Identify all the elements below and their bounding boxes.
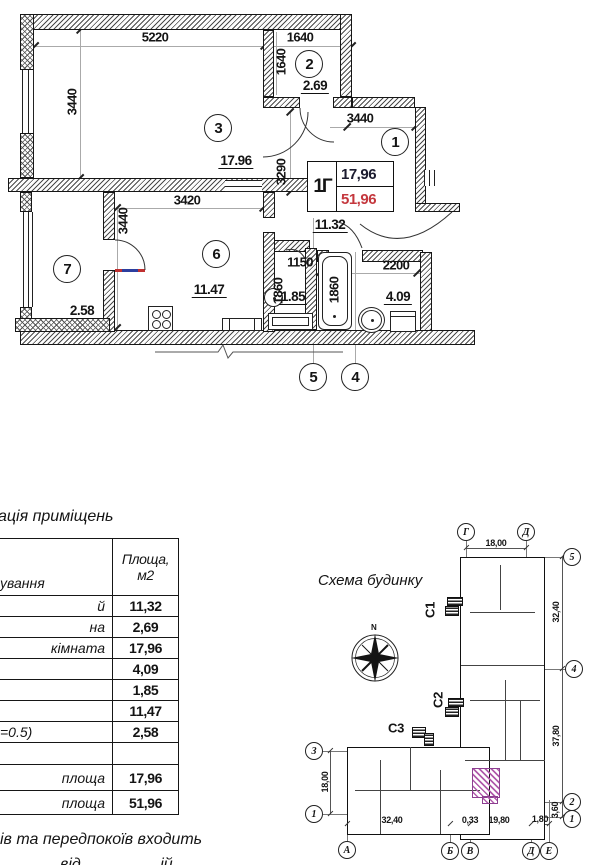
dim-1640-v: 1640 (274, 49, 289, 76)
door-leaf-red (138, 269, 145, 272)
wall-segment (8, 178, 310, 192)
dim-3290: 3290 (274, 159, 289, 186)
partition-line (461, 665, 544, 666)
area-room7: 2.58 (68, 303, 96, 319)
dim-line (80, 30, 81, 178)
stair-icon (447, 597, 463, 606)
row-value: 4,09 (113, 659, 178, 679)
stair-icon (424, 733, 434, 746)
door-arc (263, 112, 308, 157)
wall-segment (420, 252, 432, 332)
wall-segment (415, 107, 426, 205)
washing-machine (268, 313, 313, 330)
dim-3440-right: 3440 (347, 111, 374, 126)
table-header-area-2: м2 (137, 567, 154, 583)
row-value: 11,32 (113, 596, 178, 616)
dim-3440-left: 3440 (65, 89, 80, 116)
wall-segment (415, 203, 460, 212)
dim-2200: 2200 (383, 258, 410, 273)
table-row: 4,09 (0, 658, 178, 679)
stamp-total-area: 51,96 (337, 187, 393, 211)
row-value: 2,58 (113, 722, 178, 742)
dim-1150: 1150 (287, 255, 313, 270)
footnote-line1: ів та передпокоїв входить (0, 831, 202, 849)
table-row: площа 51,96 (0, 790, 178, 814)
axis-circle-e: Е (540, 842, 558, 860)
section-label-c3: С3 (388, 721, 404, 736)
room-number-5: 5 (299, 363, 327, 391)
room-number-6: 6 (202, 240, 230, 268)
area-hall: 11.32 (313, 217, 348, 233)
room-number-3: 3 (204, 114, 232, 142)
partition-line (520, 700, 521, 760)
row-value (113, 743, 178, 764)
balcony-wall (15, 318, 110, 332)
highlighted-apartment (472, 768, 500, 798)
partition-line (470, 612, 535, 613)
kitchen-counter (222, 318, 262, 331)
area-room5: 1.85 (279, 289, 307, 305)
highlighted-apartment-tab (482, 796, 498, 804)
door-arc (360, 212, 452, 238)
scheme-dim-bottom-right: 1,80 (532, 814, 548, 824)
sink (358, 307, 385, 333)
partition-line (500, 565, 501, 610)
table-row: 11,47 (0, 700, 178, 721)
window (22, 70, 34, 133)
row-value: 11,47 (113, 701, 178, 721)
area-room6: 11.47 (192, 282, 227, 298)
section-label-c2: С2 (431, 692, 446, 708)
row-value: 17,96 (113, 765, 178, 790)
area-room3: 17.96 (218, 153, 253, 169)
axis-circle-5: 5 (563, 548, 581, 566)
wall-segment (20, 330, 475, 345)
row-value: 51,96 (113, 791, 178, 814)
row-label (0, 659, 113, 679)
wall-segment (103, 192, 115, 240)
section-label-c1: С1 (423, 602, 438, 618)
balcony-wall (20, 14, 34, 70)
floorplan-sheet: N 5220 1640 1640 3440 3440 3290 3420 344… (0, 0, 615, 865)
wall-segment (340, 14, 352, 97)
dim-1860-bath: 1860 (327, 277, 342, 304)
row-label: й (0, 596, 113, 616)
axis-circle-1-left: 1 (305, 805, 323, 823)
table-row: площа 17,96 (0, 764, 178, 790)
wall-segment (263, 192, 275, 218)
room-number-2: 2 (295, 50, 323, 78)
dim-3420: 3420 (174, 193, 201, 208)
axis-circle-4: 4 (565, 660, 583, 678)
axis-circle-a: А (338, 841, 356, 859)
axis-circle-d-bottom: Д (522, 842, 540, 860)
axis-circle-b: Б (441, 842, 459, 860)
wall-segment (22, 14, 352, 30)
room-number-7: 7 (53, 255, 81, 283)
window (225, 180, 262, 192)
dim-1640-h: 1640 (287, 30, 314, 45)
axis-circle-z: З (305, 742, 323, 760)
north-label: N (371, 623, 377, 632)
area-room4: 4.09 (384, 289, 412, 305)
scheme-dim-bottom-mid: 19,80 (488, 815, 509, 825)
door-leaf-blue (122, 269, 138, 272)
scheme-dim-left: 18,00 (320, 771, 330, 792)
balcony-wall (20, 133, 34, 178)
partition-line (440, 770, 441, 834)
table-header-name: ування (0, 539, 113, 595)
table-row: 1,85 (0, 679, 178, 700)
scheme-dim-line (330, 751, 331, 814)
dim-5220: 5220 (142, 30, 169, 45)
axis-circle-1-right: 1 (563, 810, 581, 828)
stove (148, 306, 173, 331)
dim-3440-mid: 3440 (116, 208, 131, 235)
window (23, 212, 33, 307)
axis-circle-g: Г (457, 523, 475, 541)
door-arc (300, 108, 334, 142)
scheme-dim-top: 18,00 (485, 538, 506, 548)
apartment-type-label: 1Г (308, 162, 337, 211)
room-number-4: 4 (341, 363, 369, 391)
dim-line (117, 208, 263, 209)
wall-segment (352, 97, 415, 108)
table-row: на 2,69 (0, 616, 178, 637)
wall-segment (263, 30, 274, 97)
table-header-area-1: Площа, (122, 551, 169, 567)
row-label: кімната (0, 638, 113, 658)
row-label: на (0, 617, 113, 637)
dim-line (34, 46, 352, 47)
door-arc (115, 240, 145, 270)
wall-segment (263, 97, 300, 108)
partition-line (505, 680, 506, 760)
stamp-living-area: 17,96 (337, 162, 393, 187)
door-leaf-red (115, 269, 122, 272)
apartment-stamp: 1Г 17,96 51,96 (307, 161, 394, 212)
scheme-dim-bottom-gap: 0,33 (462, 815, 478, 825)
scheme-dim-bottom-left: 32,40 (381, 815, 402, 825)
table-row: кімната 17,96 (0, 637, 178, 658)
stair-icon (445, 707, 459, 717)
row-label: площа (0, 765, 113, 790)
scheme-dim-line (466, 548, 526, 549)
scheme-dim-right-lower: 37,80 (551, 725, 561, 746)
break-line (155, 345, 343, 358)
room-number-1: 1 (381, 128, 409, 156)
window (424, 170, 435, 186)
row-value: 2,69 (113, 617, 178, 637)
row-value: 17,96 (113, 638, 178, 658)
wall-segment (333, 97, 352, 108)
partition-line (465, 760, 545, 761)
area-room2: 2.69 (301, 78, 329, 94)
partition-line (410, 747, 411, 790)
row-label (0, 701, 113, 721)
row-value: 1,85 (113, 680, 178, 700)
partition-line (355, 790, 480, 791)
explication-table: ування Площа, м2 й 11,32 на 2,69 кімната… (0, 538, 179, 815)
row-label: =0.5) (0, 722, 113, 742)
stair-icon (445, 606, 459, 616)
scheme-dim-right-upper: 32,40 (551, 601, 561, 622)
compass-rose (351, 634, 399, 682)
cabinet (390, 311, 416, 332)
axis-circle-2: 2 (563, 793, 581, 811)
partition-line (470, 700, 540, 701)
footnote-line2-fragment: від ій (60, 856, 173, 865)
axis-circle-v: В (461, 842, 479, 860)
scheme-dim-line (562, 557, 563, 817)
leader-line (355, 252, 356, 364)
scheme-title: Схема будинку (318, 572, 422, 589)
footnote-line2-clipped: від ій (0, 856, 260, 865)
row-label (0, 743, 113, 764)
table-header-row: ування Площа, м2 (0, 539, 178, 595)
table-row: й 11,32 (0, 595, 178, 616)
row-label: площа (0, 791, 113, 814)
scheme-dim-right-corner: 3,60 (550, 802, 560, 818)
axis-circle-d-top: Д (517, 523, 535, 541)
table-row: =0.5) 2,58 (0, 721, 178, 742)
balcony-wall (20, 192, 32, 212)
row-label (0, 680, 113, 700)
table-title: ація приміщень (0, 508, 113, 526)
table-row (0, 742, 178, 764)
stair-icon (448, 698, 464, 707)
